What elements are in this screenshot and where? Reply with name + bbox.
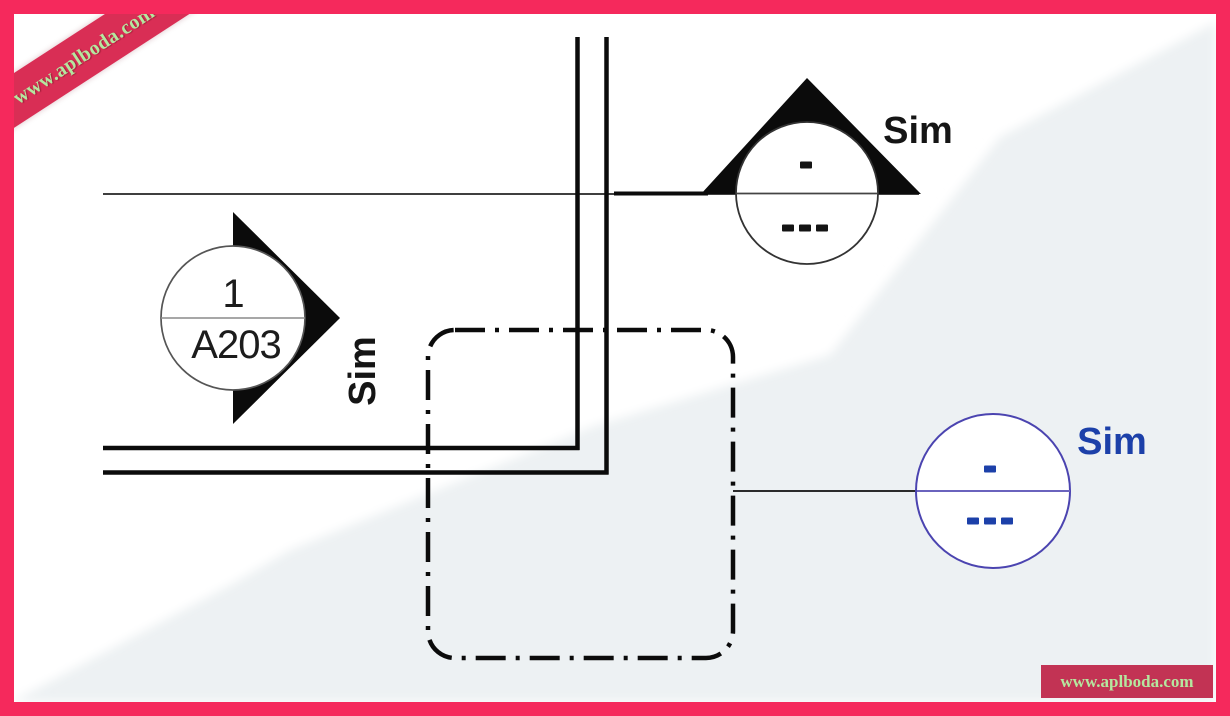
watermark-badge-text: www.aplboda.com — [1060, 672, 1193, 692]
watermark-badge: www.aplboda.com — [1041, 665, 1213, 698]
detail-number-label: 1 — [222, 274, 243, 314]
sheet-placeholder-top — [782, 225, 828, 232]
sheet-placeholder-blue — [967, 518, 1013, 525]
sim-label-top: Sim — [883, 112, 953, 150]
detail-placeholder-top — [800, 162, 812, 169]
pink-frame: 1 A203 Sim Sim Sim www.aplboda.com www.a… — [0, 0, 1230, 716]
drawing-area: 1 A203 Sim Sim Sim www.aplboda.com www.a… — [14, 14, 1216, 702]
sheet-number-label: A203 — [191, 325, 280, 365]
sim-label-blue: Sim — [1077, 423, 1147, 461]
detail-placeholder-blue — [984, 466, 996, 473]
sim-label-left: Sim — [344, 336, 382, 406]
